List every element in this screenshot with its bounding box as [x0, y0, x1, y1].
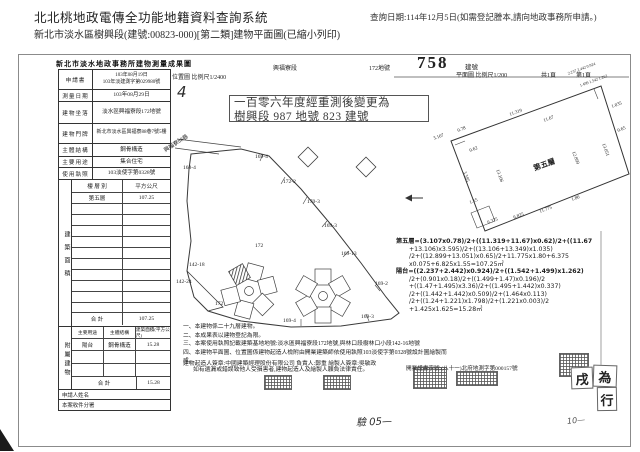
floor-total-label: 合 計 [72, 313, 123, 325]
annex-row-empty [72, 351, 170, 364]
door-value: 新北市淡水區興福寮88巷7號5樓 [93, 124, 170, 143]
annex-structure-value: 鋼骨構造 [104, 339, 136, 350]
floor-table-header: 樓 層 別 平方公尺 [72, 180, 170, 193]
note-line: 一、本建物係二十九層建物。 [183, 323, 451, 332]
note-line: 三、本案使用執照記載建築基地地號:淡水區興福寮段172地號,與林口段樹林口小段1… [183, 340, 451, 349]
annex-row-empty [72, 364, 170, 377]
floor-row-empty [72, 259, 170, 270]
parcel-label: 170-3 [307, 199, 320, 205]
applicant-label: 申請人姓名 [62, 391, 89, 399]
survey-form-table: 申請書 103年08月19日 103年淡建測字第029980號 測量日期 103… [58, 69, 171, 411]
lot-number-label: 172地號 [369, 63, 390, 72]
row-site: 建物坐落 淡水區興福寮段172地號 [59, 102, 170, 124]
calc-line: 陽台=((2.237+2.442)x0.924)/2+((1.542+1.499… [396, 268, 631, 276]
structure-label: 主體結構 [59, 144, 93, 156]
use-label: 主要用途 [59, 157, 93, 167]
system-title: 北北桃地政電傳全功能地籍資料查詢系統 [34, 7, 268, 26]
parcel-label: 169-3 [324, 223, 337, 229]
site-value: 淡水區興福寮段172地號 [93, 102, 170, 123]
area-calculation-block: 第五層=(3.107x0.78)/2+((11.319+11.67)x0.62)… [396, 238, 631, 313]
parcel-label: 169-4 [255, 154, 268, 160]
remark-line-2: 樹興段 987 地號 823 建號 [234, 111, 424, 125]
annex-col3-header: 建築面積(平方公尺) [136, 327, 170, 338]
calc-line: +((1.47+1.495)x3.36)/2+((1.495+1.442)x0.… [409, 283, 631, 291]
calc-line: +1.425x1.625=15.28㎡ [409, 306, 631, 314]
pages-total: 共1頁 [541, 70, 556, 79]
floor-row-empty [72, 303, 170, 313]
floor-row-empty [72, 248, 170, 259]
company-seal [264, 375, 292, 390]
row-structure: 主體結構 鋼骨構造 [59, 144, 170, 157]
row-door: 建物門牌 新北市淡水區興福寮88巷7號5樓 [59, 124, 170, 144]
annex-col1-header: 主要用途 [72, 327, 104, 338]
handwritten-check-mark: 驗 05— [356, 412, 393, 429]
parcel-label: 142-24 [176, 279, 192, 285]
parcel-label: 172 [255, 243, 263, 249]
license-value: 103淡使字第0328號 [93, 168, 170, 179]
survey-date-value: 103年08月29日 [93, 90, 170, 101]
row-use: 主要用途 集合住宅 [59, 157, 170, 168]
application-label: 申請書 [59, 70, 93, 89]
handwritten-seal-char: 戌 [571, 367, 594, 390]
calc-line: +13.106)x3.595)/2+((13.106+13.349)x1.035… [409, 246, 631, 254]
floor-area-section-label: 建築面積 [59, 180, 72, 326]
floor-name: 第五層 [72, 193, 123, 203]
handwritten-mark-4: 4 [177, 83, 187, 101]
office-row: 本案收件分署 [59, 400, 170, 410]
calc-line: /2+(0.901x0.18)/2+((1.499+1.47)x0.196)/2 [409, 276, 631, 284]
floor-row-empty [72, 281, 170, 292]
floor-row-empty [72, 270, 170, 281]
office-label: 本案收件分署 [62, 401, 94, 409]
calc-line: 第五層=(3.107x0.78)/2+((11.319+11.67)x0.62)… [396, 238, 631, 246]
floor-area-value: 107.25 [123, 193, 170, 203]
handwritten-seal-char: 為 [593, 365, 618, 388]
parcel-label: 169-2 [375, 281, 388, 287]
site-label: 建物坐落 [59, 102, 93, 123]
floor-col2-header: 平方公尺 [123, 180, 170, 192]
scan-corner-artifact [0, 429, 14, 451]
form-title: 新北市淡水地政事務所建物測量成果圖 [56, 59, 192, 69]
calc-line: x0.075+6.825x1.55=107.25㎡ [409, 261, 631, 269]
annex-col2-header: 主體結構 [104, 327, 136, 338]
parcel-label: 172 [215, 301, 223, 307]
row-survey-date: 測量日期 103年08月29日 [59, 90, 170, 102]
annex-total-row: 合 計 15.28 [72, 377, 170, 389]
floor-area-section: 建築面積 樓 層 別 平方公尺 第五層 107.25 [59, 180, 170, 327]
calc-line: /2+((1.442+1.442)x0.509)/2+(1.464x0.113) [409, 291, 631, 299]
floor-row-empty [72, 226, 170, 237]
license-seal-1 [413, 367, 447, 389]
section-name-label: 興福寮段 [273, 63, 297, 72]
handwritten-note: 10— [567, 415, 586, 426]
floor-col1-header: 樓 層 別 [72, 180, 123, 192]
application-no: 103年淡建測字第029980號 [103, 80, 161, 86]
parcel-label: 168-4 [183, 165, 196, 171]
annex-total-value: 15.28 [137, 377, 170, 389]
annex-section-label: 附屬建物 [59, 327, 72, 389]
parcel-label: 172-2 [283, 179, 296, 185]
floor-total-row: 合 計 107.25 [72, 313, 170, 325]
use-value: 集合住宅 [93, 157, 170, 167]
calc-line: /2+((1.24+1.221)x1.798)/2+(1.221x0.003)/… [409, 298, 631, 306]
floor-row-empty [72, 215, 170, 226]
annex-section: 附屬建物 主要用途 主體結構 建築面積(平方公尺) 陽台 鋼骨構造 15.28 … [59, 327, 170, 390]
row-license: 使用執照 103淡使字第0328號 [59, 168, 170, 180]
parcel-label: 169-13 [341, 251, 357, 257]
survey-date-label: 測量日期 [59, 90, 93, 101]
parcel-label: 169-3 [361, 314, 374, 320]
building-number: 758 [417, 53, 449, 73]
annex-area-value: 15.28 [136, 339, 170, 350]
note-line: 二、本成果表以建物登記為限。 [183, 332, 451, 341]
calc-line: /2+((12.899+13.051)x0.65)/2+11.775x1.80+… [409, 253, 631, 261]
applicant-row: 申請人姓名 [59, 390, 170, 400]
annex-row-balcony: 陽台 鋼骨構造 15.28 [72, 339, 170, 351]
annex-header: 主要用途 主體結構 建築面積(平方公尺) [72, 327, 170, 339]
floor-row-5f: 第五層 107.25 [72, 193, 170, 204]
license-seal-2 [456, 371, 498, 386]
annex-total-label: 合 計 [72, 377, 137, 389]
survey-result-sheet: 新北市淡水地政事務所建物測量成果圖 申請書 103年08月19日 103年淡建測… [18, 54, 631, 447]
query-date-note: 查詢日期:114年12月5日(如需登記謄本,請向地政事務所申請。) [370, 11, 632, 23]
floor-plan-caption: 平面圖 比例尺1/200 [456, 70, 507, 79]
floor-row-empty [72, 237, 170, 248]
door-label: 建物門牌 [59, 124, 93, 143]
signature-line: 建物起造人簽章:中國建築經理股份有限公司 負責人:鄭重 繪製人簽章:吳敏政 [183, 358, 376, 367]
license-label: 使用執照 [59, 168, 93, 179]
annex-use-value: 陽台 [72, 339, 104, 350]
floor-row-empty [72, 204, 170, 215]
parcel-label: 142-18 [189, 262, 205, 268]
handwritten-seal-char: 行 [597, 387, 617, 411]
row-application: 申請書 103年08月19日 103年淡建測字第029980號 [59, 70, 170, 90]
resurvey-remark-box: 一百零六年度經重測後變更為 樹興段 987 地號 823 建號 [229, 95, 429, 122]
structure-value: 鋼骨構造 [93, 144, 170, 156]
floor-row-empty [72, 292, 170, 303]
site-map-caption: 位置圖 比例尺1/2400 [172, 72, 226, 81]
floor-total-value: 107.25 [123, 313, 170, 325]
drafter-seal [323, 375, 351, 390]
document-subtitle: 新北市淡水區樹興段(建號:00823-000)[第二類]建物平面圖(已縮小列印) [34, 26, 340, 41]
remark-line-1: 一百零六年度經重測後變更為 [234, 97, 424, 111]
